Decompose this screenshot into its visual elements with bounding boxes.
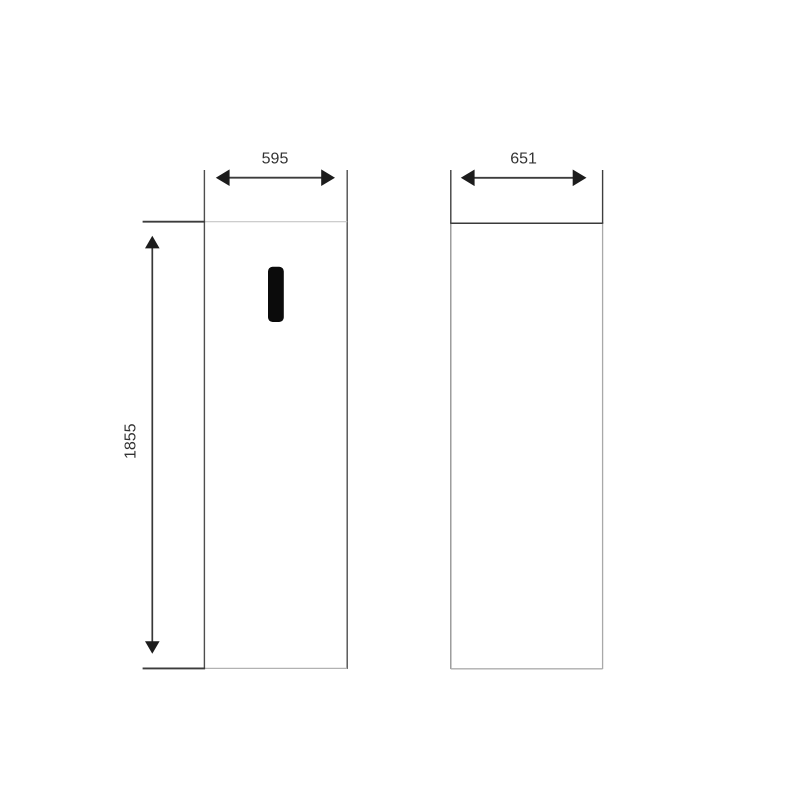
svg-text:1855: 1855 xyxy=(122,423,139,459)
svg-text:651: 651 xyxy=(510,151,537,168)
svg-text:595: 595 xyxy=(262,151,289,168)
